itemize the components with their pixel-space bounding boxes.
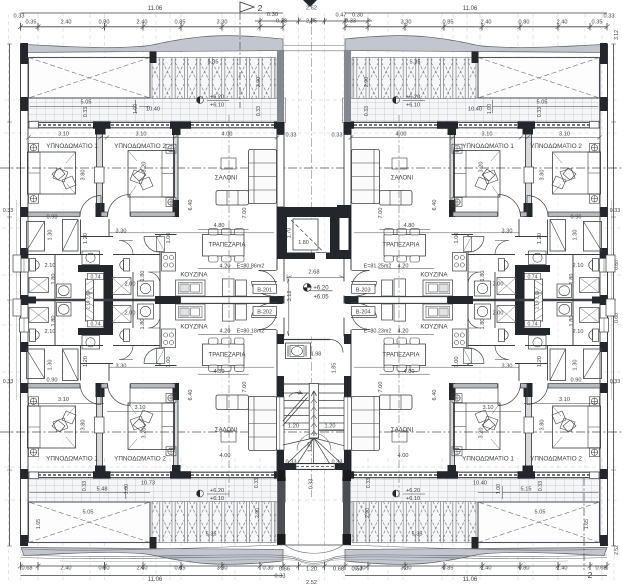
svg-text:0.66: 0.66 [279,567,290,573]
svg-text:1.00: 1.00 [133,104,139,114]
svg-text:3.10: 3.10 [136,132,147,138]
svg-text:1.00: 1.00 [166,357,172,368]
svg-text:0.33: 0.33 [332,460,343,466]
svg-text:10.40: 10.40 [146,107,160,113]
svg-text:ΥΠΝΟΔΩΜΑΤΙΟ 1: ΥΠΝΟΔΩΜΑΤΙΟ 1 [462,456,514,463]
svg-text:2.19: 2.19 [86,290,91,299]
svg-text:1.30: 1.30 [573,360,579,371]
svg-text:3.20: 3.20 [142,162,148,173]
svg-text:E=80.18m2: E=80.18m2 [237,329,265,335]
svg-text:3.10: 3.10 [482,132,493,138]
svg-text:2.00: 2.00 [125,311,136,317]
svg-text:2.00: 2.00 [125,282,136,288]
svg-text:3.20: 3.20 [479,428,485,439]
svg-text:1.65: 1.65 [584,519,590,529]
svg-text:2.40: 2.40 [61,566,72,572]
svg-text:2.40: 2.40 [61,19,72,25]
svg-text:ΚΟΥΖΙΝΑ: ΚΟΥΖΙΝΑ [420,272,448,279]
svg-text:0.35: 0.35 [592,19,603,25]
svg-text:3.80: 3.80 [81,170,87,181]
svg-text:1.80: 1.80 [51,274,57,285]
svg-text:2.52: 2.52 [306,580,317,586]
svg-text:2.00: 2.00 [493,311,504,317]
svg-text:+6.20: +6.20 [313,285,329,291]
svg-text:6.40: 6.40 [432,390,438,401]
svg-text:0.85: 0.85 [175,19,186,25]
svg-text:5.48: 5.48 [97,487,108,493]
svg-text:1.00: 1.00 [454,233,460,244]
svg-text:ΤΡΑΠΕΖΑΡΙΑ: ΤΡΑΠΕΖΑΡΙΑ [383,353,420,359]
svg-text:1.80: 1.80 [569,274,575,285]
svg-text:0.33: 0.33 [610,208,621,214]
svg-text:3.10: 3.10 [58,397,69,403]
svg-text:10.40: 10.40 [468,107,482,113]
svg-text:7.00: 7.00 [378,382,384,393]
svg-text:ΚΟΥΖΙΝΑ: ΚΟΥΖΙΝΑ [180,324,208,331]
svg-text:1.20: 1.20 [537,356,543,367]
svg-text:1.20: 1.20 [83,356,89,367]
svg-text:4.00: 4.00 [220,453,231,459]
svg-text:0.74: 0.74 [527,322,537,328]
svg-text:3.30: 3.30 [116,229,127,235]
svg-text:0.33: 0.33 [332,133,343,139]
svg-text:2.10: 2.10 [573,329,584,335]
svg-text:1.80: 1.80 [569,316,575,327]
svg-text:5.05: 5.05 [81,100,92,106]
svg-text:7.00: 7.00 [378,208,384,219]
svg-text:+6.20: +6.20 [210,95,224,101]
svg-text:B-203: B-203 [356,287,371,293]
svg-text:1.80: 1.80 [298,240,309,246]
svg-text:1.80: 1.80 [51,316,57,327]
svg-text:ΤΡΑΠΕΖΑΡΙΑ: ΤΡΑΠΕΖΑΡΙΑ [383,242,420,248]
svg-text:3.10: 3.10 [58,132,69,138]
svg-text:0.74: 0.74 [90,274,100,280]
svg-text:3.20: 3.20 [479,162,485,173]
svg-text:0.33: 0.33 [364,106,370,116]
svg-text:E=80.23m2: E=80.23m2 [364,329,392,335]
svg-text:B-201: B-201 [257,287,272,293]
svg-text:2.90: 2.90 [364,77,370,87]
svg-text:ΥΠΝΟΔΩΜΑΤΙΟ 2: ΥΠΝΟΔΩΜΑΤΙΟ 2 [530,456,582,463]
svg-text:0.90: 0.90 [47,215,58,221]
svg-text:1.85: 1.85 [332,363,338,374]
svg-text:5.35: 5.35 [206,532,217,538]
svg-text:11.06: 11.06 [463,577,478,583]
svg-text:2.19: 2.19 [535,300,540,309]
svg-text:0.74: 0.74 [90,322,100,328]
svg-text:5.05: 5.05 [83,510,94,516]
svg-text:1.00: 1.00 [454,357,460,368]
svg-text:ΥΠΝΟΔΩΜΑΤΙΟ 2: ΥΠΝΟΔΩΜΑΤΙΟ 2 [530,143,582,150]
svg-text:4.80: 4.80 [404,223,415,229]
svg-text:1.20: 1.20 [306,567,317,573]
svg-text:0.90: 0.90 [571,378,582,384]
svg-text:0.33: 0.33 [3,379,14,385]
svg-text:ΥΠΝΟΔΩΜΑΤΙΟ 1: ΥΠΝΟΔΩΜΑΤΙΟ 1 [46,456,98,463]
svg-text:0.33: 0.33 [604,14,615,20]
svg-text:5.05: 5.05 [535,510,546,516]
svg-text:1.80: 1.80 [480,319,486,330]
svg-text:5.35: 5.35 [410,60,421,66]
svg-text:+6.20: +6.20 [406,95,420,101]
svg-text:2.10: 2.10 [45,329,56,335]
svg-text:2.62: 2.62 [306,6,317,12]
svg-text:0.33: 0.33 [275,574,286,580]
svg-text:0.68: 0.68 [596,566,607,572]
svg-text:ΤΡΑΠΕΖΑΡΙΑ: ΤΡΑΠΕΖΑΡΙΑ [209,353,246,359]
svg-text:4.20: 4.20 [398,329,409,335]
svg-text:4.00: 4.00 [398,453,409,459]
svg-text:1.30: 1.30 [48,230,54,241]
svg-text:+6.10: +6.10 [210,103,224,109]
svg-text:3.30: 3.30 [502,364,513,370]
svg-text:1.20: 1.20 [83,233,89,244]
svg-text:5.35: 5.35 [412,532,423,538]
svg-text:3.30: 3.30 [401,19,412,25]
svg-text:3.30: 3.30 [401,566,412,572]
svg-text:ΣΑΛΟΝΙ: ΣΑΛΟΝΙ [391,428,414,434]
svg-text:6.40: 6.40 [188,390,194,401]
svg-text:+6.05: +6.05 [313,294,329,300]
svg-text:1.30: 1.30 [48,360,54,371]
svg-text:0.68: 0.68 [22,566,33,572]
svg-text:2: 2 [258,3,263,13]
svg-text:ΣΑΛΟΝΙ: ΣΑΛΟΝΙ [391,176,414,182]
svg-text:2.90: 2.90 [255,508,261,518]
svg-text:5.15: 5.15 [521,487,532,493]
svg-text:0.33: 0.33 [14,14,25,20]
svg-text:1.00: 1.00 [496,484,502,494]
svg-text:10.40: 10.40 [473,481,487,487]
svg-text:3.10: 3.10 [483,405,494,411]
svg-text:+6.20: +6.20 [406,488,420,494]
svg-text:+6.10: +6.10 [210,496,224,502]
svg-text:6.40: 6.40 [432,200,438,211]
svg-text:7.00: 7.00 [242,382,248,393]
svg-text:0.53: 0.53 [352,567,363,573]
svg-text:0.90: 0.90 [47,378,58,384]
svg-text:0.33: 0.33 [538,481,544,491]
svg-text:1.00: 1.00 [166,233,172,244]
svg-text:4.20: 4.20 [220,329,231,335]
svg-text:0.33: 0.33 [3,208,14,214]
svg-text:5.05: 5.05 [537,100,548,106]
svg-text:3.80: 3.80 [81,420,87,431]
svg-text:0.35: 0.35 [26,19,37,25]
svg-text:1.00: 1.00 [487,104,493,114]
svg-text:0.33: 0.33 [83,107,89,117]
svg-text:0.33: 0.33 [366,478,372,488]
svg-text:1.30: 1.30 [573,230,579,241]
svg-text:2.10: 2.10 [45,263,56,269]
svg-text:10.73: 10.73 [141,481,155,487]
svg-text:1.80: 1.80 [140,319,146,330]
svg-text:5.35: 5.35 [208,60,219,66]
svg-text:0.33: 0.33 [254,478,260,488]
svg-text:ΥΠΝΟΔΩΜΑΤΙΟ 2: ΥΠΝΟΔΩΜΑΤΙΟ 2 [114,456,166,463]
svg-text:2.00: 2.00 [493,282,504,288]
svg-text:0.33: 0.33 [537,107,543,117]
svg-text:B-204: B-204 [356,310,371,316]
svg-text:4.80: 4.80 [214,223,225,229]
svg-text:3.30: 3.30 [116,364,127,370]
svg-text:0.33: 0.33 [286,460,297,466]
svg-text:0.74: 0.74 [527,274,537,280]
svg-text:0.80: 0.80 [99,19,110,25]
svg-text:1.70: 1.70 [287,228,293,239]
svg-text:11.06: 11.06 [148,577,163,583]
svg-text:1.20: 1.20 [537,233,543,244]
svg-text:3.20: 3.20 [142,428,148,439]
svg-text:ΚΟΥΖΙΝΑ: ΚΟΥΖΙΝΑ [180,272,208,279]
svg-text:0.66: 0.66 [333,567,344,573]
svg-text:1.20: 1.20 [308,442,314,453]
svg-text:11.06: 11.06 [463,6,478,12]
svg-text:ΥΠΝΟΔΩΜΑΤΙΟ 1: ΥΠΝΟΔΩΜΑΤΙΟ 1 [46,143,98,150]
svg-text:ΥΠΝΟΔΩΜΑΤΙΟ 1: ΥΠΝΟΔΩΜΑΤΙΟ 1 [462,143,514,150]
svg-text:1.20: 1.20 [325,423,336,429]
svg-text:0.33: 0.33 [610,379,621,385]
svg-text:+6.20: +6.20 [210,488,224,494]
svg-text:+6.10: +6.10 [406,496,420,502]
svg-text:1.98: 1.98 [311,352,322,358]
svg-text:0.90: 0.90 [571,215,582,221]
svg-text:+6.10: +6.10 [406,103,420,109]
svg-text:0.85: 0.85 [175,566,186,572]
svg-text:ΥΠΝΟΔΩΜΑΤΙΟ 2: ΥΠΝΟΔΩΜΑΤΙΟ 2 [114,143,166,150]
svg-text:1.80: 1.80 [480,271,486,282]
svg-text:2.10: 2.10 [573,263,584,269]
svg-text:3.12: 3.12 [614,30,620,40]
svg-text:1.20: 1.20 [288,423,299,429]
svg-text:2.19: 2.19 [535,290,540,299]
svg-text:ΣΑΛΟΝΙ: ΣΑΛΟΝΙ [215,428,238,434]
svg-text:1.00: 1.00 [124,484,130,494]
svg-text:0.33: 0.33 [82,481,88,491]
svg-text:0.33: 0.33 [256,106,262,116]
svg-text:3.80: 3.80 [540,420,546,431]
svg-text:6.40: 6.40 [188,200,194,211]
svg-text:3.30: 3.30 [502,229,513,235]
svg-text:3.10: 3.10 [559,132,570,138]
svg-text:2.90: 2.90 [365,508,371,518]
svg-text:2.40: 2.40 [137,19,148,25]
svg-text:2.68: 2.68 [308,270,319,276]
svg-text:ΣΑΛΟΝΙ: ΣΑΛΟΝΙ [215,176,238,182]
svg-text:B-202: B-202 [257,310,272,316]
svg-text:ΤΡΑΠΕΖΑΡΙΑ: ΤΡΑΠΕΖΑΡΙΑ [209,242,246,248]
svg-text:2.40: 2.40 [137,566,148,572]
svg-text:2.52: 2.52 [614,545,620,555]
svg-text:1.65: 1.65 [36,519,42,529]
svg-text:0.30: 0.30 [263,566,274,572]
svg-text:1.80: 1.80 [140,271,146,282]
svg-text:3.10: 3.10 [135,405,146,411]
svg-text:4.00: 4.00 [396,132,407,138]
svg-text:4.00: 4.00 [222,132,233,138]
svg-text:3.80: 3.80 [540,170,546,181]
svg-text:3.12: 3.12 [287,291,293,302]
svg-text:2.90: 2.90 [256,77,262,87]
svg-text:ΚΟΥΖΙΝΑ: ΚΟΥΖΙΝΑ [420,324,448,331]
svg-text:0.33: 0.33 [309,479,315,490]
svg-text:0.33: 0.33 [286,133,297,139]
svg-text:2: 2 [588,570,593,580]
svg-text:11.06: 11.06 [148,6,163,12]
svg-text:2.19: 2.19 [86,300,91,309]
svg-text:7.00: 7.00 [242,208,248,219]
svg-text:3.10: 3.10 [559,397,570,403]
